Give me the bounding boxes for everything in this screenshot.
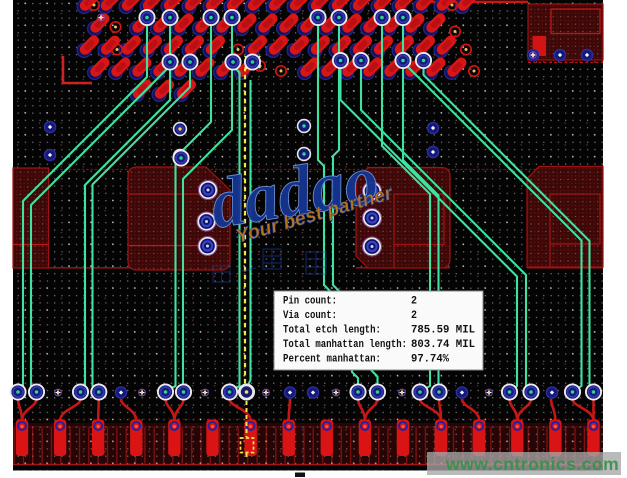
svg-text:Percent manhattan:: Percent manhattan: bbox=[283, 354, 381, 366]
svg-text:Total manhattan length:: Total manhattan length: bbox=[283, 339, 407, 351]
svg-text:Pin count:: Pin count: bbox=[283, 296, 337, 308]
svg-text:2: 2 bbox=[411, 310, 417, 322]
svg-text:97.74%: 97.74% bbox=[411, 354, 449, 366]
svg-text:Via count:: Via count: bbox=[283, 310, 337, 322]
svg-text:Total etch length:: Total etch length: bbox=[283, 325, 381, 337]
svg-text:785.59 MIL: 785.59 MIL bbox=[411, 325, 475, 337]
svg-text:www.cntronics.com: www.cntronics.com bbox=[445, 454, 619, 474]
svg-text:803.74 MIL: 803.74 MIL bbox=[411, 339, 475, 351]
svg-text:2: 2 bbox=[411, 296, 417, 308]
